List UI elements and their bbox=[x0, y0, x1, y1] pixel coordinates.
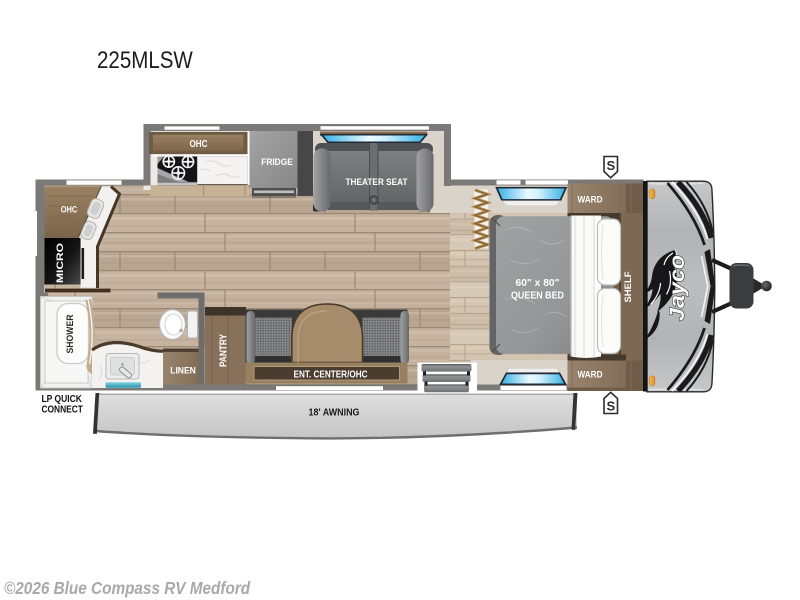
svg-text:S: S bbox=[606, 398, 615, 413]
svg-text:QUEEN BED: QUEEN BED bbox=[511, 291, 564, 302]
svg-text:WARD: WARD bbox=[578, 369, 603, 380]
svg-text:CONNECT: CONNECT bbox=[41, 404, 83, 415]
svg-text:THEATER SEAT: THEATER SEAT bbox=[346, 177, 408, 188]
svg-text:MICRO: MICRO bbox=[55, 243, 66, 283]
svg-text:SHELF: SHELF bbox=[623, 271, 633, 303]
svg-text:S: S bbox=[606, 158, 615, 173]
svg-text:WARD: WARD bbox=[578, 194, 603, 205]
svg-text:60" x 80": 60" x 80" bbox=[516, 278, 560, 289]
svg-text:OHC: OHC bbox=[190, 139, 208, 150]
svg-text:18' AWNING: 18' AWNING bbox=[309, 408, 360, 419]
svg-text:PANTRY: PANTRY bbox=[219, 334, 230, 367]
svg-text:ENT. CENTER/OHC: ENT. CENTER/OHC bbox=[294, 370, 368, 381]
svg-text:OHC: OHC bbox=[61, 205, 78, 216]
svg-text:Jayco: Jayco bbox=[665, 255, 689, 321]
svg-text:LINEN: LINEN bbox=[170, 365, 196, 375]
svg-text:FRIDGE: FRIDGE bbox=[261, 157, 293, 168]
svg-text:SHOWER: SHOWER bbox=[65, 314, 75, 354]
